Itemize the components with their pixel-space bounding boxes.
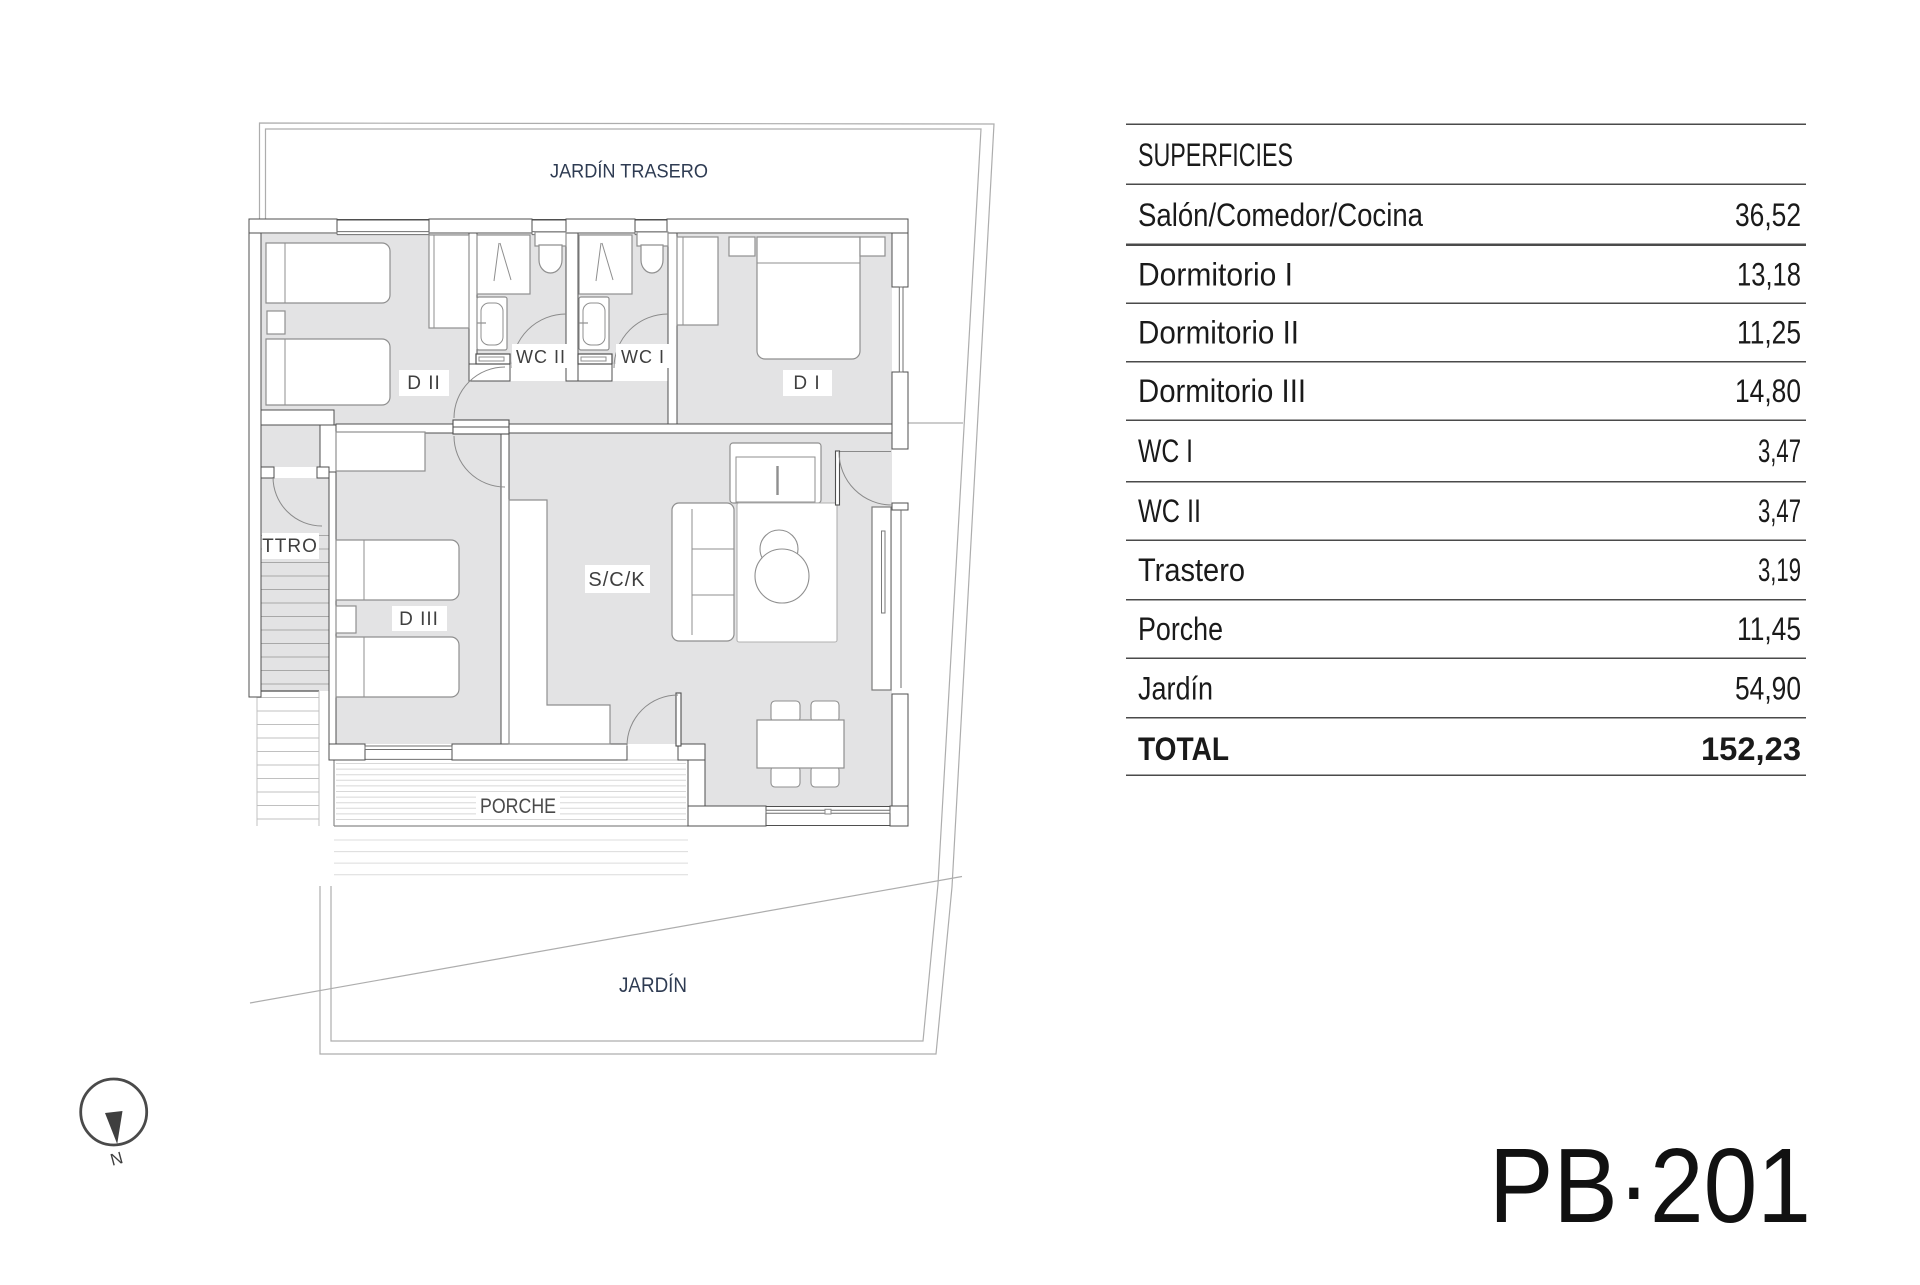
svg-text:Jardín: Jardín <box>1138 670 1213 706</box>
svg-text:Dormitorio II: Dormitorio II <box>1138 315 1299 351</box>
svg-text:PB·201: PB·201 <box>1489 1127 1811 1245</box>
svg-text:D III: D III <box>399 609 439 630</box>
svg-text:Dormitorio III: Dormitorio III <box>1138 373 1306 409</box>
svg-text:S/C/K: S/C/K <box>588 569 645 591</box>
svg-text:WC I: WC I <box>1138 433 1193 469</box>
svg-text:PORCHE: PORCHE <box>480 794 556 818</box>
svg-text:SUPERFICIES: SUPERFICIES <box>1138 137 1293 173</box>
svg-text:D II: D II <box>407 373 441 394</box>
svg-text:13,18: 13,18 <box>1737 256 1801 292</box>
svg-text:152,23: 152,23 <box>1701 731 1801 767</box>
svg-text:3,47: 3,47 <box>1758 493 1801 529</box>
svg-text:WC I: WC I <box>621 347 665 367</box>
svg-text:11,25: 11,25 <box>1737 315 1801 351</box>
svg-text:WC II: WC II <box>516 347 566 367</box>
svg-text:JARDÍN: JARDÍN <box>619 972 687 997</box>
svg-text:Dormitorio I: Dormitorio I <box>1138 256 1293 292</box>
svg-text:TTRO: TTRO <box>262 536 318 557</box>
svg-text:JARDÍN TRASERO: JARDÍN TRASERO <box>550 162 708 183</box>
svg-text:3,47: 3,47 <box>1758 433 1801 469</box>
svg-text:14,80: 14,80 <box>1735 373 1801 409</box>
svg-text:36,52: 36,52 <box>1735 197 1801 233</box>
svg-text:Porche: Porche <box>1138 611 1223 647</box>
svg-text:Trastero: Trastero <box>1138 552 1245 588</box>
svg-text:TOTAL: TOTAL <box>1138 731 1229 767</box>
svg-text:D I: D I <box>793 373 820 394</box>
svg-text:Salón/Comedor/Cocina: Salón/Comedor/Cocina <box>1138 197 1423 233</box>
svg-text:3,19: 3,19 <box>1758 552 1801 588</box>
svg-text:54,90: 54,90 <box>1735 670 1801 706</box>
svg-text:WC II: WC II <box>1138 493 1201 529</box>
svg-text:11,45: 11,45 <box>1737 611 1801 647</box>
